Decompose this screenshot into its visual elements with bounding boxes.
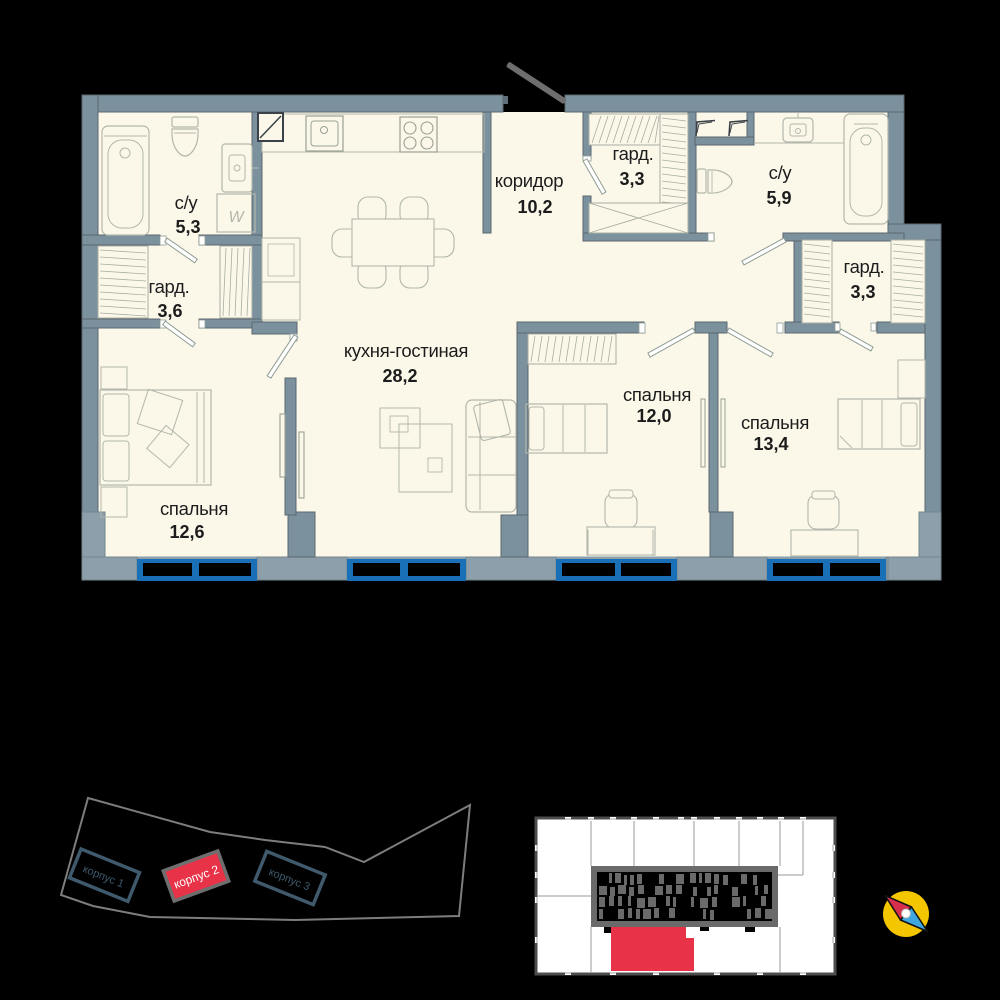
svg-text:28,2: 28,2: [382, 366, 417, 386]
svg-text:W: W: [228, 209, 245, 226]
svg-text:13,4: 13,4: [753, 434, 788, 454]
svg-text:с/у: с/у: [175, 192, 199, 213]
svg-text:3,3: 3,3: [619, 169, 644, 189]
svg-text:12,6: 12,6: [169, 522, 204, 542]
svg-text:3,6: 3,6: [157, 301, 182, 321]
svg-text:спальня: спальня: [160, 498, 228, 519]
svg-text:10,2: 10,2: [517, 197, 552, 217]
svg-text:спальня: спальня: [623, 384, 691, 405]
svg-text:гард.: гард.: [613, 143, 654, 164]
svg-text:12,0: 12,0: [636, 406, 671, 426]
svg-text:5,3: 5,3: [175, 217, 200, 237]
svg-text:3,3: 3,3: [850, 282, 875, 302]
svg-text:коридор: коридор: [495, 170, 564, 191]
svg-text:гард.: гард.: [149, 276, 190, 297]
svg-text:с/у: с/у: [769, 162, 793, 183]
svg-text:гард.: гард.: [844, 256, 885, 277]
svg-text:кухня-гостиная: кухня-гостиная: [344, 340, 468, 361]
svg-text:5,9: 5,9: [766, 188, 791, 208]
svg-text:спальня: спальня: [741, 412, 809, 433]
